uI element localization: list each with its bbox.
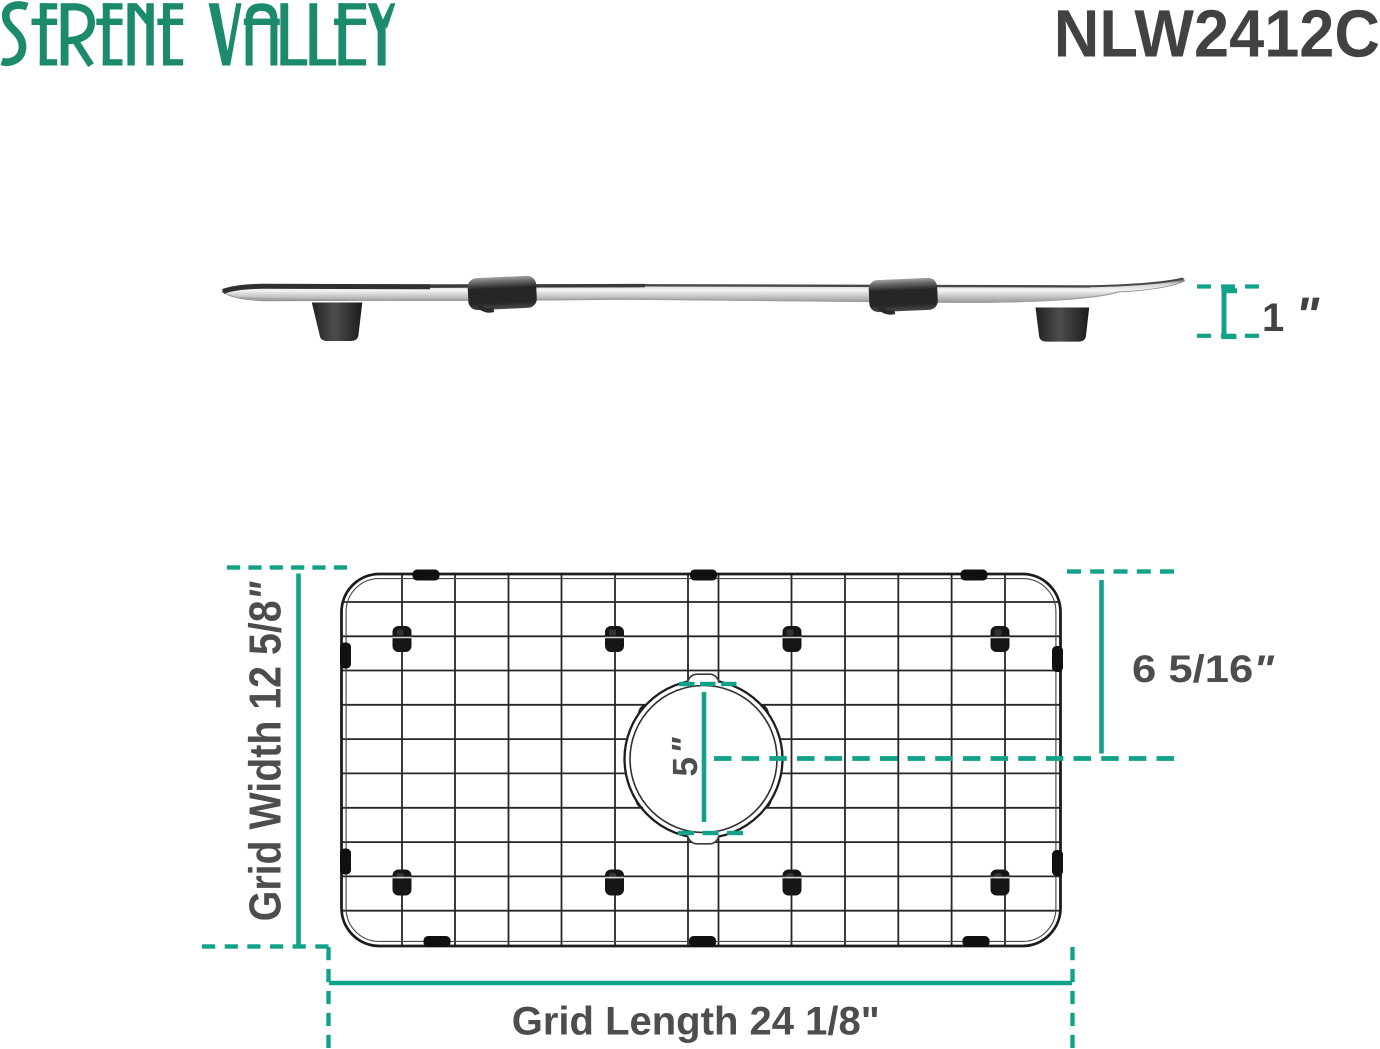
svg-text:Grid Length 24 1/8": Grid Length 24 1/8" xyxy=(512,1000,880,1044)
svg-text:Grid Width 12 5/8": Grid Width 12 5/8" xyxy=(240,581,291,921)
svg-text:6 5/16": 6 5/16" xyxy=(1132,648,1275,691)
svg-text:NLW2412C: NLW2412C xyxy=(1054,0,1380,72)
svg-text:1 ": 1 " xyxy=(1262,287,1320,343)
